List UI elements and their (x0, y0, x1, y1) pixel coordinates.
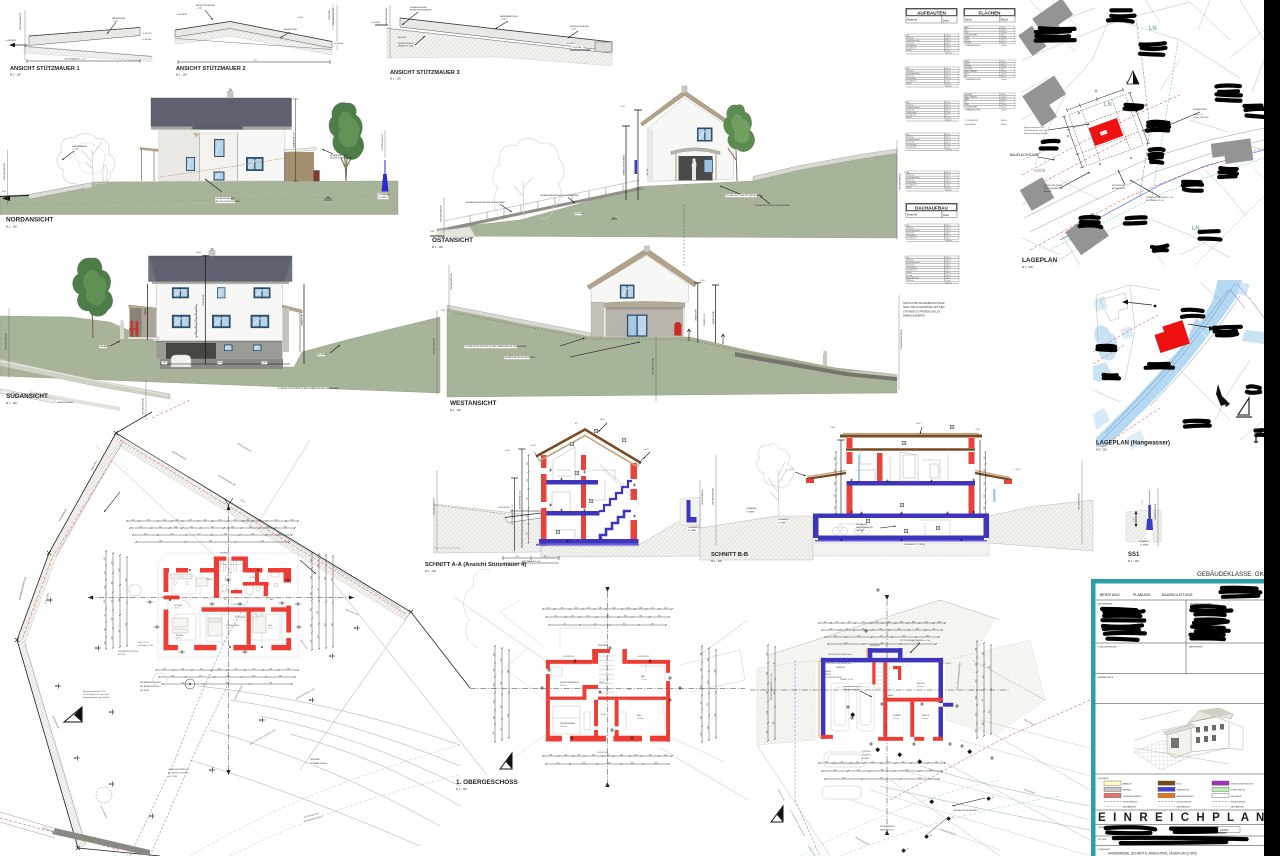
svg-text:227: 227 (159, 526, 162, 528)
svg-text:248: 248 (159, 540, 162, 542)
svg-text:0,30 cm: 0,30 cm (945, 50, 951, 52)
svg-text:130: 130 (561, 607, 564, 609)
svg-text:GRUNDGRENZE: GRUNDGRENZE (1079, 492, 1081, 510)
svg-text:414: 414 (929, 769, 932, 771)
svg-text:364: 364 (975, 680, 977, 683)
svg-text:311: 311 (982, 652, 984, 655)
svg-text:114: 114 (555, 615, 558, 617)
svg-text:+7,65: +7,65 (700, 280, 705, 282)
svg-text:40,00 cm: 40,00 cm (945, 149, 952, 151)
svg-text:HOLZ: HOLZ (1177, 784, 1183, 786)
svg-text:SCHNITTBETON: SCHNITTBETON (1231, 790, 1246, 792)
svg-text:183: 183 (575, 607, 578, 609)
svg-text:SÜDANSICHT: SÜDANSICHT (6, 391, 48, 400)
svg-text:322: 322 (310, 559, 312, 562)
svg-text:0,00: 0,00 (218, 362, 222, 364)
svg-text:SPRITZSCHUTZSTREIFEN 50cm: SPRITZSCHUTZSTREIFEN 50cm (826, 663, 852, 665)
svg-text:+- 4,25: +- 4,25 (530, 445, 536, 447)
svg-text:GRUNDGRENZE: GRUNDGRENZE (4, 162, 6, 180)
svg-text:285: 285 (493, 668, 495, 671)
svg-text:GRUNDGRENZE: GRUNDGRENZE (441, 204, 443, 222)
svg-text:TRAGW. 2 KFZ: TRAGW. 2 KFZ (840, 678, 854, 681)
svg-text:STÜTZMAUER M4 - 2,0: STÜTZMAUER M4 - 2,0 (511, 505, 514, 525)
svg-text:388: 388 (912, 621, 915, 623)
svg-text:M 1:100: M 1:100 (118, 654, 126, 656)
svg-text:439: 439 (231, 526, 234, 528)
svg-text:GEBÄUDEKLASSE: GK 1: GEBÄUDEKLASSE: GK 1 (1197, 571, 1269, 578)
svg-text:ASPHALTIERTE EINFAHRT: ASPHALTIERTE EINFAHRT (954, 809, 979, 812)
svg-text:151: 151 (766, 691, 768, 694)
svg-text:375: 375 (118, 630, 120, 633)
svg-text:448: 448 (639, 607, 642, 609)
svg-text:NACHBARGEB.: NACHBARGEB. (1231, 806, 1245, 809)
svg-text:GRUNDGRENZE: GRUNDGRENZE (386, 7, 388, 25)
svg-text:220: 220 (586, 615, 589, 617)
svg-text:384: 384 (631, 762, 634, 764)
svg-text:+2,00 GEL.: +2,00 GEL. (334, 43, 345, 45)
svg-text:GRUNDGRENZE: GRUNDGRENZE (713, 487, 715, 505)
svg-text:1.OBERGESCHOSS: 1.OBERGESCHOSS (965, 79, 982, 81)
svg-text:DIMENSIONIEREN: DIMENSIONIEREN (903, 315, 925, 318)
svg-text:STÜTZSCHEIBENMAUER ca. 1,0m: STÜTZSCHEIBENMAUER ca. 1,0m (900, 639, 931, 642)
svg-text:GRUNDGRENZE: GRUNDGRENZE (143, 397, 145, 415)
svg-text:ANST. STM 4: ANST. STM 4 (940, 662, 951, 665)
svg-text:BAUFÜHRER: BAUFÜHRER (1189, 646, 1203, 649)
svg-text:301: 301 (209, 540, 212, 542)
svg-text:1,0: 1,0 (1134, 519, 1136, 522)
svg-text:+-0,00 GEL.: +-0,00 GEL. (572, 47, 583, 49)
svg-text:273: 273 (500, 658, 502, 661)
svg-text:CARPORT: CARPORT (836, 666, 846, 669)
svg-text:249: 249 (984, 482, 986, 485)
svg-text:139: 139 (773, 692, 775, 695)
svg-text:180: 180 (773, 721, 775, 724)
svg-text:109: 109 (834, 457, 836, 460)
svg-text:146: 146 (975, 713, 977, 716)
svg-text:+- 1,0: +- 1,0 (1142, 500, 1144, 505)
svg-text:-0,35: -0,35 (441, 310, 445, 312)
svg-text:0,30 cm: 0,30 cm (945, 187, 951, 189)
svg-text:+8,05: +8,05 (196, 252, 201, 254)
svg-text:16090: 16090 (1220, 828, 1229, 832)
svg-text:334: 334 (118, 599, 120, 602)
svg-text:105: 105 (975, 696, 977, 699)
svg-text:WOHNEN: WOHNEN (174, 605, 183, 607)
svg-text:STIEGE KONSTRUKTION: STIEGE KONSTRUKTION (1231, 784, 1254, 786)
svg-text:STEINSCHLICHTUNG: STEINSCHLICHTUNG (118, 651, 139, 653)
svg-text:MAUERKRONE: MAUERKRONE (284, 28, 298, 31)
svg-text:BÖSCHUNG: BÖSCHUNG (235, 616, 246, 619)
svg-text:OK. BESCHÜTTUNG MIT DEM GELÄND: OK. BESCHÜTTUNG MIT DEM GELÄNDE (755, 204, 790, 207)
svg-text:+-0,00: +-0,00 (297, 17, 304, 19)
svg-text:177: 177 (195, 307, 197, 310)
svg-text:136: 136 (935, 761, 938, 763)
svg-text:331: 331 (700, 653, 702, 656)
svg-text:303: 303 (926, 635, 929, 637)
svg-text:375: 375 (527, 497, 529, 500)
svg-text:BESTEHENDE: BESTEHENDE (1112, 185, 1125, 187)
svg-text:40,00 cm: 40,00 cm (945, 120, 952, 122)
svg-text:1: 1 (904, 172, 905, 174)
svg-text:ANSICHT STÜTZMAUER 2: ANSICHT STÜTZMAUER 2 (176, 65, 246, 72)
svg-text:Material: Material (907, 18, 917, 22)
svg-text:WÄRMEDÄMMUNG: WÄRMEDÄMMUNG (1177, 795, 1195, 798)
svg-text:GARAGE: GARAGE (824, 670, 832, 673)
svg-text:402: 402 (204, 519, 207, 521)
svg-text:266: 266 (218, 668, 221, 670)
svg-text:108: 108 (234, 519, 237, 521)
svg-text:LAGEPLAN (Hangwasser): LAGEPLAN (Hangwasser) (1096, 441, 1170, 447)
svg-text:DJ 500 Beton inkl. und 2,000: DJ 500 Beton inkl. und 2,000 (1024, 129, 1047, 132)
svg-text:197: 197 (199, 675, 202, 677)
svg-text:293: 293 (118, 569, 120, 572)
svg-text:214: 214 (258, 519, 261, 521)
svg-text:-0,35: -0,35 (430, 231, 434, 233)
svg-text:423: 423 (252, 533, 255, 535)
svg-text:40,00 cm: 40,00 cm (945, 190, 952, 192)
svg-text:229: 229 (875, 621, 878, 623)
svg-text:Regenwasserkanal 1:100: Regenwasserkanal 1:100 (83, 691, 106, 693)
svg-text:-0,00 GEL.: -0,00 GEL. (371, 22, 381, 24)
svg-text:130: 130 (714, 714, 716, 717)
svg-text:387: 387 (111, 618, 113, 621)
svg-text:BAD: BAD (641, 675, 646, 678)
svg-text:333: 333 (190, 526, 193, 528)
svg-text:SCHLAFZIMMER: SCHLAFZIMMER (226, 624, 240, 627)
svg-text:GRUNDGRENZE: GRUNDGRENZE (1155, 503, 1157, 520)
svg-text:341: 341 (195, 332, 197, 335)
svg-text:282: 282 (888, 621, 891, 623)
svg-text:M 1 : 100: M 1 : 100 (1128, 559, 1139, 563)
svg-text:KELLER: KELLER (922, 715, 930, 717)
svg-text:292: 292 (880, 777, 883, 779)
svg-text:GELÄNDE AN DER GRUNDGRENZE: GELÄNDE AN DER GRUNDGRENZE (505, 356, 536, 359)
svg-text:377: 377 (887, 761, 890, 763)
svg-text:140: 140 (104, 628, 106, 631)
svg-text:478: 478 (287, 668, 290, 670)
svg-text:LEGEBAUELEMENTE: LEGEBAUELEMENTE (1123, 795, 1143, 798)
svg-text:PROJEKT: PROJEKT (1098, 839, 1108, 841)
svg-text:GRUNDGRENZE: GRUNDGRENZE (333, 7, 335, 25)
svg-text:M 1 : 100: M 1 : 100 (450, 408, 461, 412)
svg-text:0,30 cm: 0,30 cm (945, 117, 951, 119)
svg-text:GRENZAB.: GRENZAB. (328, 9, 331, 20)
svg-text:STEINKORBSTÜTZM.: STEINKORBSTÜTZM. (1044, 184, 1063, 187)
svg-text:190: 190 (147, 519, 150, 521)
svg-text:TIEFPUNKT: TIEFPUNKT (310, 759, 321, 761)
svg-text:218: 218 (841, 761, 844, 763)
svg-text:SÄMTLICHE TRAGENDE BAUTEILE: SÄMTLICHE TRAGENDE BAUTEILE (903, 302, 945, 305)
svg-text:OK. ANSCHLUSS ENTSPRICHT DEM G: OK. ANSCHLUSS ENTSPRICHT DEM GELÄNDE AN … (465, 345, 528, 348)
svg-text:Gesamtfläche: Gesamtfläche (965, 123, 976, 126)
svg-text:227: 227 (310, 640, 312, 643)
svg-text:+- 1,0m: +- 1,0m (112, 21, 119, 23)
svg-text:181: 181 (182, 682, 185, 684)
svg-text:ANSICHT STÜTZMAUER 1: ANSICHT STÜTZMAUER 1 (10, 65, 80, 72)
svg-text:347: 347 (592, 754, 595, 756)
svg-text:137: 137 (131, 519, 134, 521)
svg-text:GRUNDGRENZE: GRUNDGRENZE (20, 12, 22, 30)
svg-text:SCHLAFZIMMER: SCHLAFZIMMER (560, 722, 576, 725)
svg-text:GELÄNDEVERLAUF AN DER GRUNDGRE: GELÄNDEVERLAUF AN DER GRUNDGRENZE (540, 194, 579, 197)
svg-text:430m = 1,0: 430m = 1,0 (1194, 114, 1203, 116)
svg-text:STRASSENGRENZE: STRASSENGRENZE (900, 329, 903, 350)
svg-text:M 1 : 500: M 1 : 500 (1096, 448, 1107, 452)
svg-text:1: 1 (904, 102, 905, 104)
svg-text:208: 208 (984, 469, 986, 472)
svg-text:460/B: 460/B (1034, 168, 1046, 173)
svg-text:264: 264 (111, 562, 113, 565)
svg-text:395: 395 (627, 607, 630, 609)
svg-text:+0,00 OST: +0,00 OST (142, 33, 153, 35)
svg-text:FUNDAMENT: FUNDAMENT (746, 507, 757, 510)
svg-text:282: 282 (975, 648, 977, 651)
svg-text:23,94 m²: 23,94 m² (917, 685, 924, 688)
svg-text:FUNDAMENT: FUNDAMENT (688, 526, 699, 529)
svg-text:GRUNDRISS: GRUNDRISS (597, 752, 609, 754)
svg-text:FUNDAMENT: FUNDAMENT (378, 193, 391, 196)
svg-text:M 1 : 100: M 1 : 100 (6, 225, 17, 229)
svg-text:40,00 cm: 40,00 cm (945, 240, 952, 242)
svg-text:331: 331 (608, 762, 611, 764)
svg-text:PLANVERFASSER: PLANVERFASSER (1098, 646, 1117, 649)
svg-text:198: 198 (284, 526, 287, 528)
svg-text:OK FB. ERDG.: OK FB. ERDG. (498, 507, 511, 509)
svg-text:40,00 cm: 40,00 cm (945, 86, 952, 88)
svg-text:+8,05: +8,05 (600, 419, 605, 421)
svg-text:ZIMMER: ZIMMER (176, 635, 184, 637)
svg-text:LT. STATIK: LT. STATIK (778, 522, 787, 525)
svg-text:128: 128 (844, 642, 847, 644)
svg-text:GRUNDGRENZE: GRUNDGRENZE (1123, 802, 1139, 804)
svg-text:OK. ANSCHLUSS ENTSPRICHT DEM G: OK. ANSCHLUSS ENTSPRICHT DEM GELÄNDE AN … (277, 387, 340, 390)
svg-text:358: 358 (104, 600, 106, 603)
svg-text:NORDANSICHT: NORDANSICHT (6, 217, 53, 224)
svg-text:Dampfbremse: Dampfbremse (907, 238, 917, 240)
svg-text:Name: Name (965, 17, 972, 21)
svg-text:+0,00 WEST: +0,00 WEST (176, 14, 188, 16)
svg-text:NACHBARGEB.: NACHBARGEB. (1177, 806, 1191, 809)
svg-text:17_KELLER 2017: 17_KELLER 2017 (965, 120, 979, 122)
svg-text:278: 278 (582, 762, 585, 764)
svg-text:160: 160 (181, 668, 184, 670)
svg-text:LN: LN (1192, 226, 1200, 232)
svg-text:432: 432 (658, 615, 661, 617)
svg-text:145: 145 (310, 608, 312, 611)
svg-text:WOHN-ESSBEREICH: WOHN-ESSBEREICH (560, 682, 579, 684)
svg-text:FUNDAMENT: FUNDAMENT (778, 518, 789, 521)
svg-text:241: 241 (564, 754, 567, 756)
svg-text:233: 233 (766, 731, 768, 734)
svg-text:360: 360 (707, 658, 709, 661)
svg-text:WANDHÖHE: WANDHÖHE (694, 309, 697, 321)
svg-text:314: 314 (500, 682, 502, 685)
svg-text:NIVEAUGLEICHER ANSCH., DG: NIVEAUGLEICHER ANSCH., DG (1146, 196, 1173, 199)
svg-text:STATIKER ZU PRÜFEN UND ZU: STATIKER ZU PRÜFEN UND ZU (903, 310, 940, 313)
svg-text:+7,65: +7,65 (830, 427, 835, 429)
svg-text:AB 80/60: AB 80/60 (1044, 190, 1051, 193)
svg-text:ASPHALTIERTE: ASPHALTIERTE (1112, 187, 1126, 190)
svg-text:BESCHÜT.: BESCHÜT. (398, 36, 407, 39)
svg-text:264: 264 (125, 623, 127, 626)
svg-text:VORPLATZ: VORPLATZ (862, 750, 872, 753)
svg-text:FUNDAMENT: FUNDAMENT (1138, 540, 1150, 543)
svg-text:294: 294 (577, 754, 580, 756)
svg-text:186: 186 (310, 624, 312, 627)
svg-text:GESAMTHÖHE 10,35: GESAMTHÖHE 10,35 (519, 491, 522, 510)
svg-text:369: 369 (766, 653, 768, 656)
svg-text:MIT ANSTECKHÖHEN: MIT ANSTECKHÖHEN (168, 772, 189, 775)
svg-text:453: 453 (620, 754, 623, 756)
svg-text:WINDFANG: WINDFANG (870, 644, 880, 647)
svg-text:101: 101 (707, 681, 709, 684)
svg-text:DACHAUFBAU: DACHAUFBAU (915, 205, 948, 210)
svg-text:WESTANSICHT: WESTANSICHT (450, 400, 496, 407)
svg-text:267: 267 (275, 519, 278, 521)
svg-text:SCHNITT A-A (Ansicht Stützmaue: SCHNITT A-A (Ansicht Stützmauer 4) (425, 562, 526, 568)
svg-text:GRUNDGRENZE: GRUNDGRENZE (451, 272, 453, 290)
svg-text:FIRSTHÖHE: FIRSTHÖHE (202, 294, 205, 306)
svg-text:154: 154 (664, 607, 667, 609)
svg-text:252: 252 (331, 578, 333, 581)
svg-text:417: 417 (824, 621, 827, 623)
svg-text:108: 108 (493, 716, 495, 719)
svg-text:ABBRUCH: ABBRUCH (1123, 783, 1133, 786)
svg-text:372: 372 (700, 668, 702, 671)
svg-text:Material: Material (907, 213, 917, 217)
svg-text:GRUNDGRENZE: GRUNDGRENZE (653, 357, 655, 375)
svg-text:271: 271 (856, 761, 859, 763)
svg-text:308: 308 (881, 769, 884, 771)
svg-text:LT. STATIK: LT. STATIK (378, 196, 388, 199)
svg-text:157: 157 (527, 532, 529, 535)
svg-text:SCHNITT B-B: SCHNITT B-B (711, 552, 748, 558)
svg-text:305: 305 (111, 581, 113, 584)
svg-text:144: 144 (171, 675, 174, 677)
svg-text:M 1 : 100: M 1 : 100 (425, 569, 436, 573)
svg-text:+- 1,0m: +- 1,0m (196, 8, 203, 10)
svg-text:STAHLBETON: STAHLBETON (1177, 789, 1190, 792)
svg-text:389: 389 (714, 670, 716, 673)
svg-text:320: 320 (291, 519, 294, 521)
svg-text:354: 354 (261, 540, 264, 542)
svg-text:1: 1 (904, 257, 905, 259)
svg-text:352: 352 (982, 675, 984, 678)
svg-text:1.OBERGESCHOSS: 1.OBERGESCHOSS (965, 110, 982, 112)
svg-text:1: 1 (904, 68, 905, 70)
svg-text:29,82 m²: 29,82 m² (560, 684, 567, 687)
svg-text:255: 255 (857, 769, 860, 771)
svg-text:107: 107 (845, 628, 848, 630)
svg-text:BAUBEGLEITUNG: BAUBEGLEITUNG (1162, 593, 1193, 597)
svg-text:GRUNDGRENZE: GRUNDGRENZE (1231, 802, 1247, 804)
svg-text:197: 197 (880, 635, 883, 637)
svg-text:FLÄCHEN: FLÄCHEN (979, 9, 1002, 15)
svg-text:154: 154 (700, 701, 702, 704)
svg-text:340: 340 (989, 666, 991, 669)
svg-text:+- 4,25: +- 4,25 (643, 449, 649, 451)
svg-text:437: 437 (655, 762, 658, 764)
svg-text:174: 174 (317, 635, 319, 638)
svg-text:BAUBEHÖRDE: BAUBEHÖRDE (1098, 676, 1114, 679)
svg-text:BESTAND: BESTAND (575, 212, 584, 215)
svg-text:349: 349 (189, 519, 192, 521)
svg-text:WANDHÖHE: WANDHÖHE (301, 314, 304, 326)
svg-text:273: 273 (834, 506, 836, 509)
svg-text:GELÄNDE: GELÄNDE (100, 345, 109, 348)
svg-text:+0,35: +0,35 (505, 450, 510, 452)
svg-text:STR.NIVEAU OK. DG: STR.NIVEAU OK. DG (1146, 199, 1164, 202)
svg-text:104: 104 (310, 592, 312, 595)
svg-text:470: 470 (835, 621, 838, 623)
svg-text:213: 213 (879, 628, 882, 630)
svg-text:204: 204 (593, 623, 596, 625)
svg-text:GELÄNDEVERLAUF: GELÄNDEVERLAUF (216, 197, 236, 200)
svg-text:GERÄTE: GERÄTE (824, 673, 832, 676)
svg-text:1. OBERGESCHOSS: 1. OBERGESCHOSS (456, 779, 519, 786)
svg-text:149: 149 (493, 732, 495, 735)
svg-text:346: 346 (111, 600, 113, 603)
svg-text:257: 257 (623, 623, 626, 625)
svg-text:GRUNDGRENZE: GRUNDGRENZE (702, 489, 704, 505)
svg-text:370: 370 (224, 533, 227, 535)
svg-text:Dicke: Dicke (943, 20, 950, 23)
svg-text:290: 290 (984, 495, 986, 498)
svg-text:319: 319 (916, 628, 919, 630)
svg-text:+- 1,0m: +- 1,0m (500, 19, 507, 21)
svg-text:202: 202 (833, 769, 836, 771)
svg-text:WANDHÖHE AM HANG: WANDHÖHE AM HANG (623, 154, 626, 175)
svg-text:+- 4,25: +- 4,25 (788, 469, 794, 471)
svg-text:Dampfbremse: Dampfbremse (907, 147, 917, 149)
svg-text:223: 223 (125, 578, 127, 581)
svg-text:LEGENDE: LEGENDE (1098, 778, 1109, 780)
svg-text:192: 192 (766, 711, 768, 714)
svg-text:296: 296 (175, 519, 178, 521)
svg-text:113: 113 (700, 685, 702, 688)
svg-text:236: 236 (700, 733, 702, 736)
svg-text:ENTWÄSS. MULDE: ENTWÄSS. MULDE (310, 762, 328, 765)
svg-text:GESAMTHÖHE: GESAMTHÖHE (712, 311, 715, 325)
svg-text:101: 101 (651, 607, 654, 609)
svg-text:289: 289 (599, 607, 602, 609)
svg-text:PLANUNG: PLANUNG (1133, 593, 1151, 597)
svg-text:176: 176 (862, 621, 865, 623)
svg-text:+- 1,0m: +- 1,0m (72, 149, 79, 151)
svg-text:494: 494 (938, 621, 941, 623)
svg-text:145: 145 (266, 526, 269, 528)
svg-text:+8,05: +8,05 (916, 423, 921, 425)
svg-text:361: 361 (906, 769, 909, 771)
svg-text:1.OBERGESCHOSS: 1.OBERGESCHOSS (965, 45, 982, 47)
svg-text:293: 293 (331, 623, 333, 626)
svg-text:342: 342 (613, 607, 616, 609)
svg-text:116: 116 (527, 515, 529, 518)
svg-text:300: 300 (195, 326, 197, 329)
svg-text:351: 351 (317, 564, 319, 567)
svg-text:M 1 : 100: M 1 : 100 (6, 401, 17, 405)
svg-text:259: 259 (195, 319, 197, 322)
svg-text:107: 107 (163, 668, 166, 670)
svg-text:159: 159 (649, 754, 652, 756)
svg-text:477: 477 (547, 607, 550, 609)
svg-text:236: 236 (587, 607, 590, 609)
svg-text:380: 380 (324, 577, 326, 580)
svg-text:mit Podest n. OIB: mit Podest n. OIB (138, 644, 154, 647)
svg-text:GK 13245: GK 13245 (168, 776, 178, 778)
svg-text:0,30 cm: 0,30 cm (945, 83, 951, 85)
svg-text:M 1 : 500: M 1 : 500 (1022, 265, 1033, 269)
